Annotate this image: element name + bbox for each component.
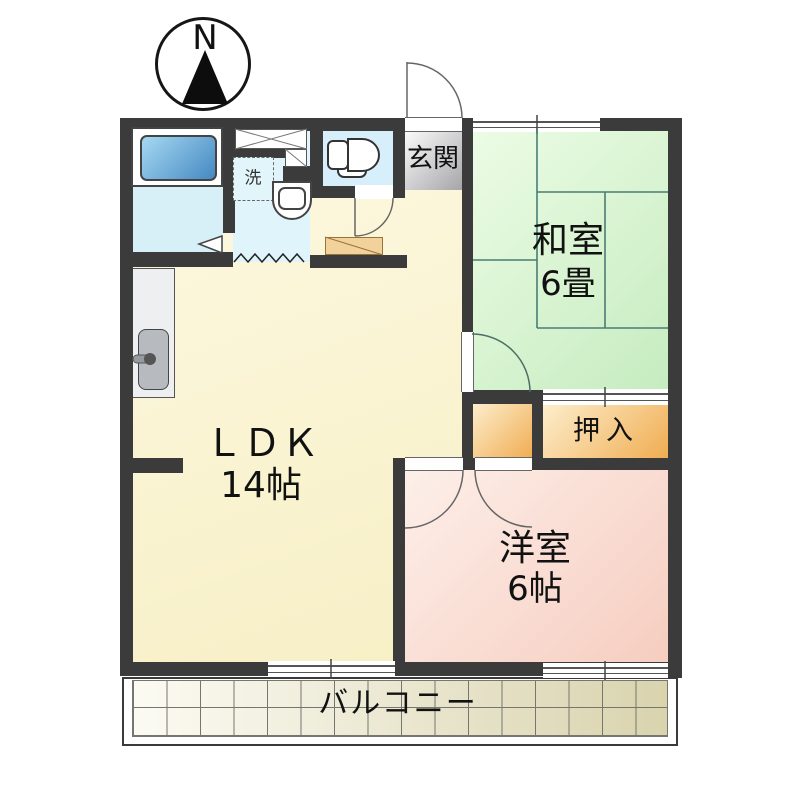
youshitsu-balcony-window-symbol xyxy=(543,663,668,678)
wall-storage-strip2 xyxy=(283,166,310,182)
youshitsu-label: 洋室 xyxy=(499,531,571,567)
front-door-swing-arc xyxy=(407,63,462,118)
room-closet-floor xyxy=(473,403,532,458)
ldk-label: ＬＤＫ xyxy=(205,424,319,462)
toilet-door-opening xyxy=(355,185,393,199)
youshitsu-door-opening xyxy=(405,457,463,471)
storage-shelf-icon xyxy=(235,129,307,149)
room-toilet-floor xyxy=(323,131,393,186)
kitchen-counter-icon xyxy=(131,268,175,398)
shoe-cabinet-icon xyxy=(325,237,383,255)
wall-left xyxy=(120,118,133,675)
bathtub-icon xyxy=(131,127,223,187)
compass-north-arrow-icon xyxy=(182,50,228,104)
oshiire-fusuma-symbol xyxy=(543,389,668,405)
front-door-opening xyxy=(405,117,462,132)
ldk-size-label: 14帖 xyxy=(220,468,302,504)
bathtub-basin xyxy=(140,135,217,181)
wall-toilet-genkan xyxy=(393,118,405,198)
storage-shelf-small-icon xyxy=(285,149,307,167)
compass-north-label: N xyxy=(192,21,217,55)
wall-hall-bottom xyxy=(310,255,407,268)
washitsu-label: 和室 xyxy=(532,223,604,259)
wall-ldk-washitsu xyxy=(462,118,473,470)
ldk-balcony-window-symbol xyxy=(268,661,395,677)
genkan-label: 玄関 xyxy=(407,146,459,172)
balcony-label: バルコニー xyxy=(318,689,477,719)
wall-bath-bottom xyxy=(120,252,233,267)
oshiire-label: 押入 xyxy=(573,418,639,445)
wall-kitchen-stub xyxy=(120,458,183,473)
wall-ldk-youshitsu xyxy=(393,458,405,676)
closet-door-opening xyxy=(475,457,532,471)
laundry-label: 洗 xyxy=(245,171,262,188)
washitsu-window-symbol xyxy=(473,117,600,132)
kitchen-sink xyxy=(138,329,169,390)
youshitsu-size-label: 6帖 xyxy=(507,572,563,606)
washitsu-door-opening xyxy=(461,332,474,392)
floor-plan: N xyxy=(0,0,800,800)
washitsu-size-label: 6畳 xyxy=(540,267,596,301)
